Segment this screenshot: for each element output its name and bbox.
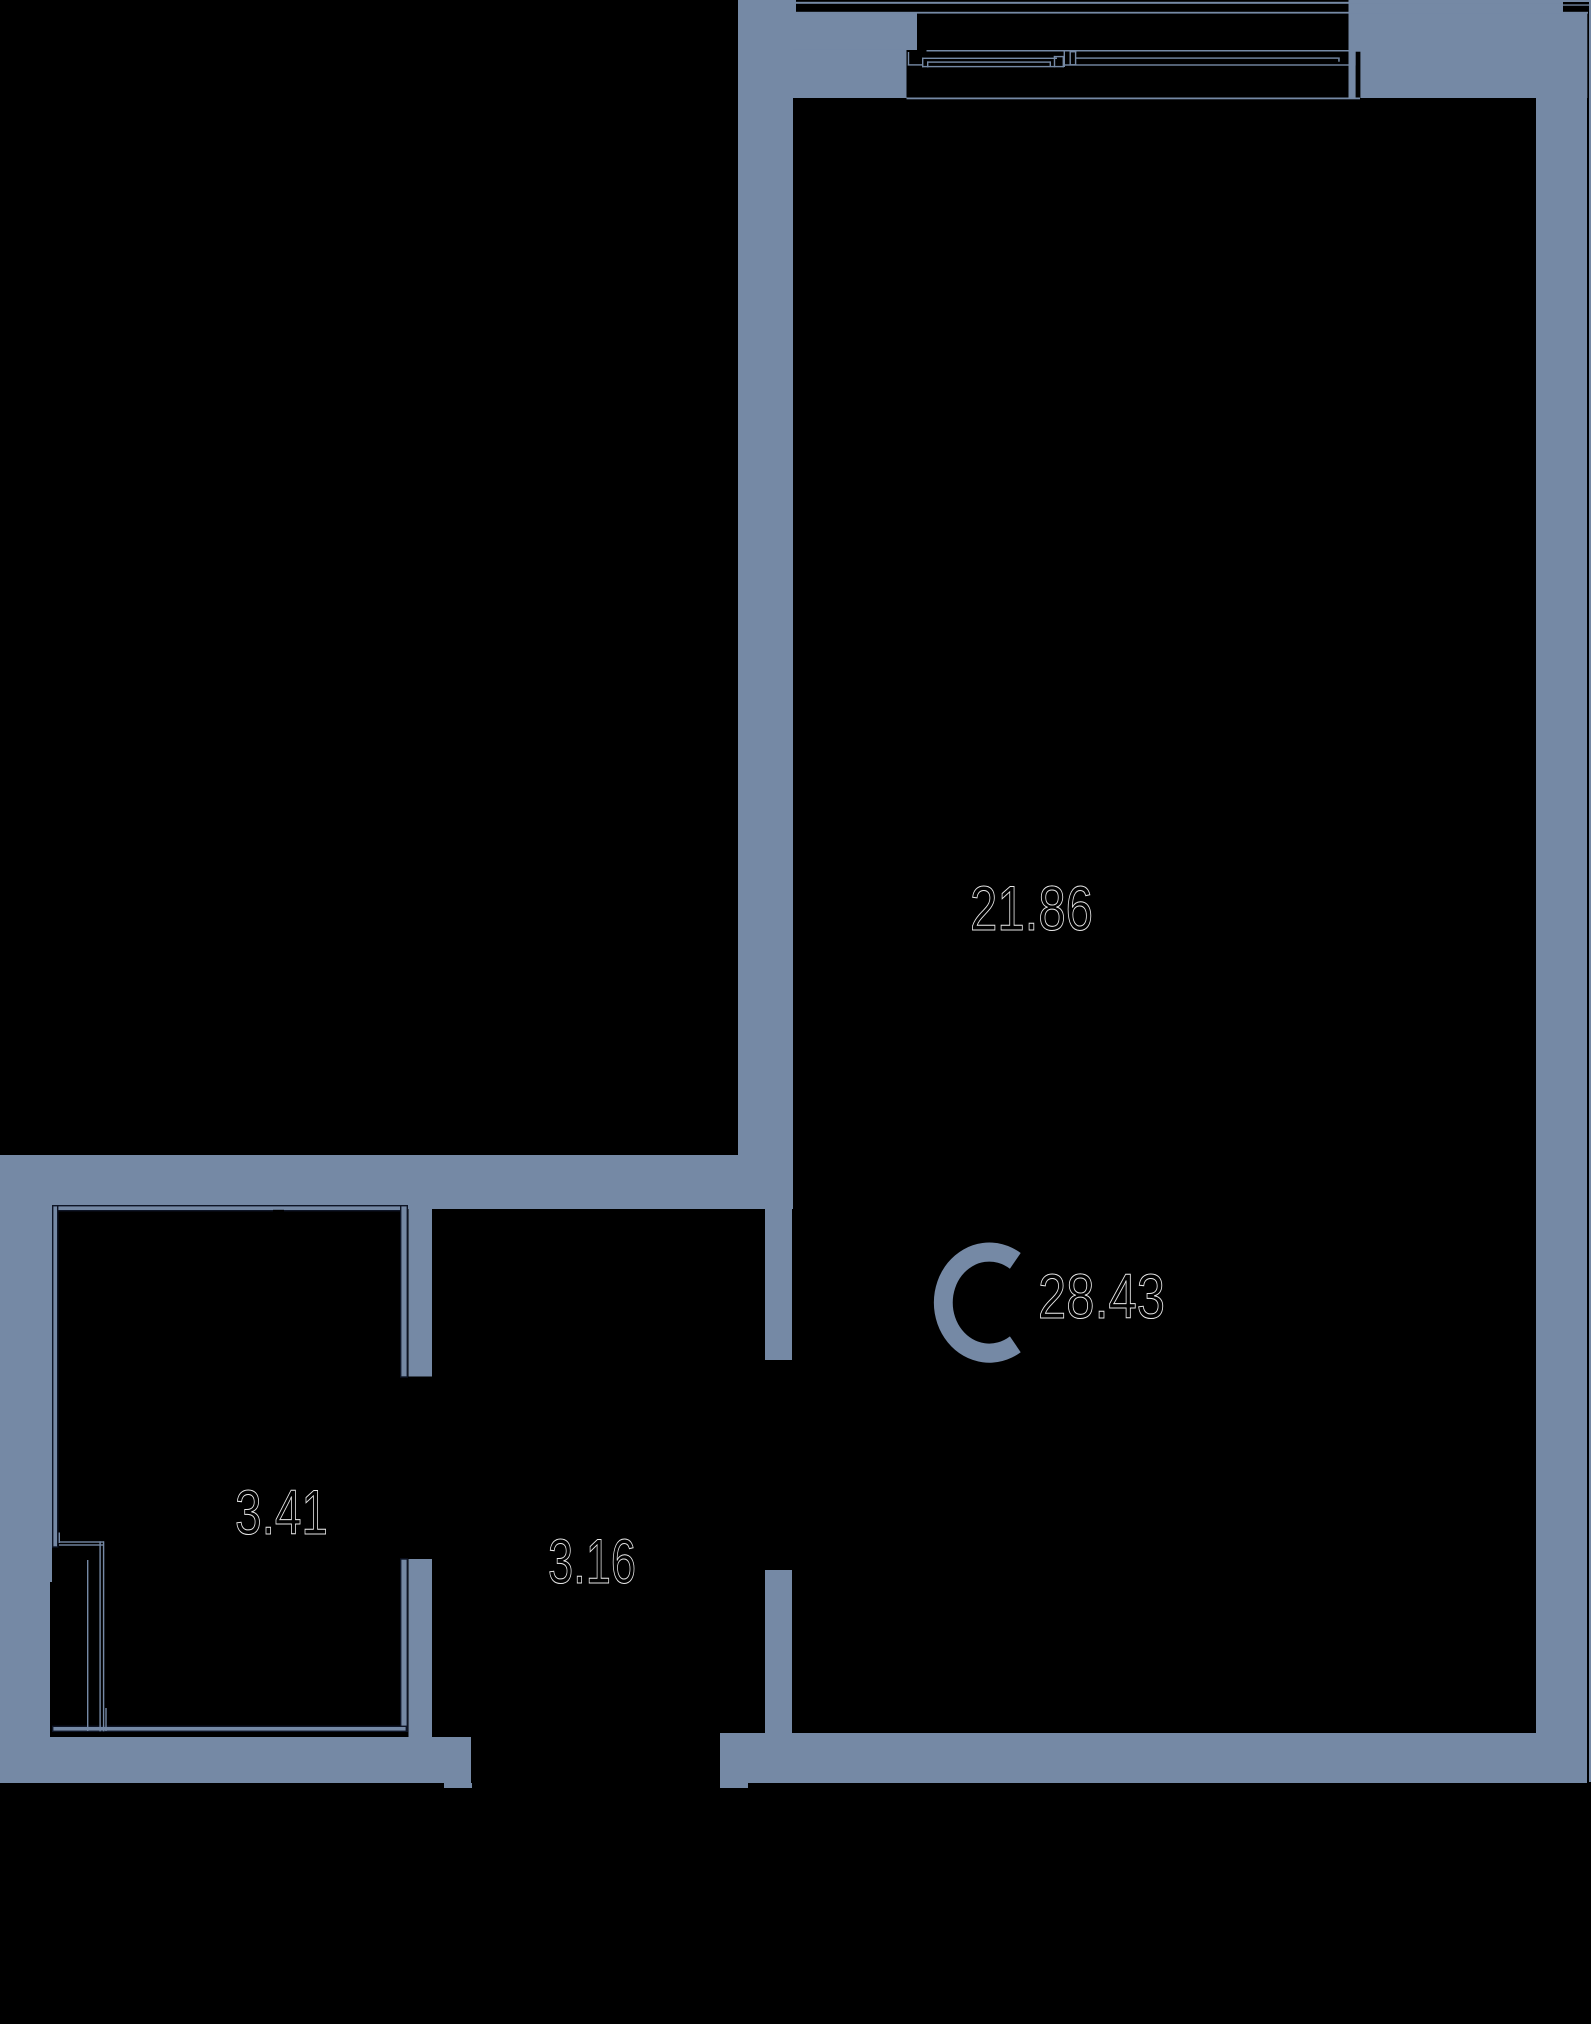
- svg-text:3.41: 3.41: [235, 1478, 328, 1548]
- svg-text:21.86: 21.86: [970, 874, 1093, 944]
- svg-text:3.16: 3.16: [548, 1527, 636, 1597]
- svg-text:28.43: 28.43: [1038, 1262, 1165, 1332]
